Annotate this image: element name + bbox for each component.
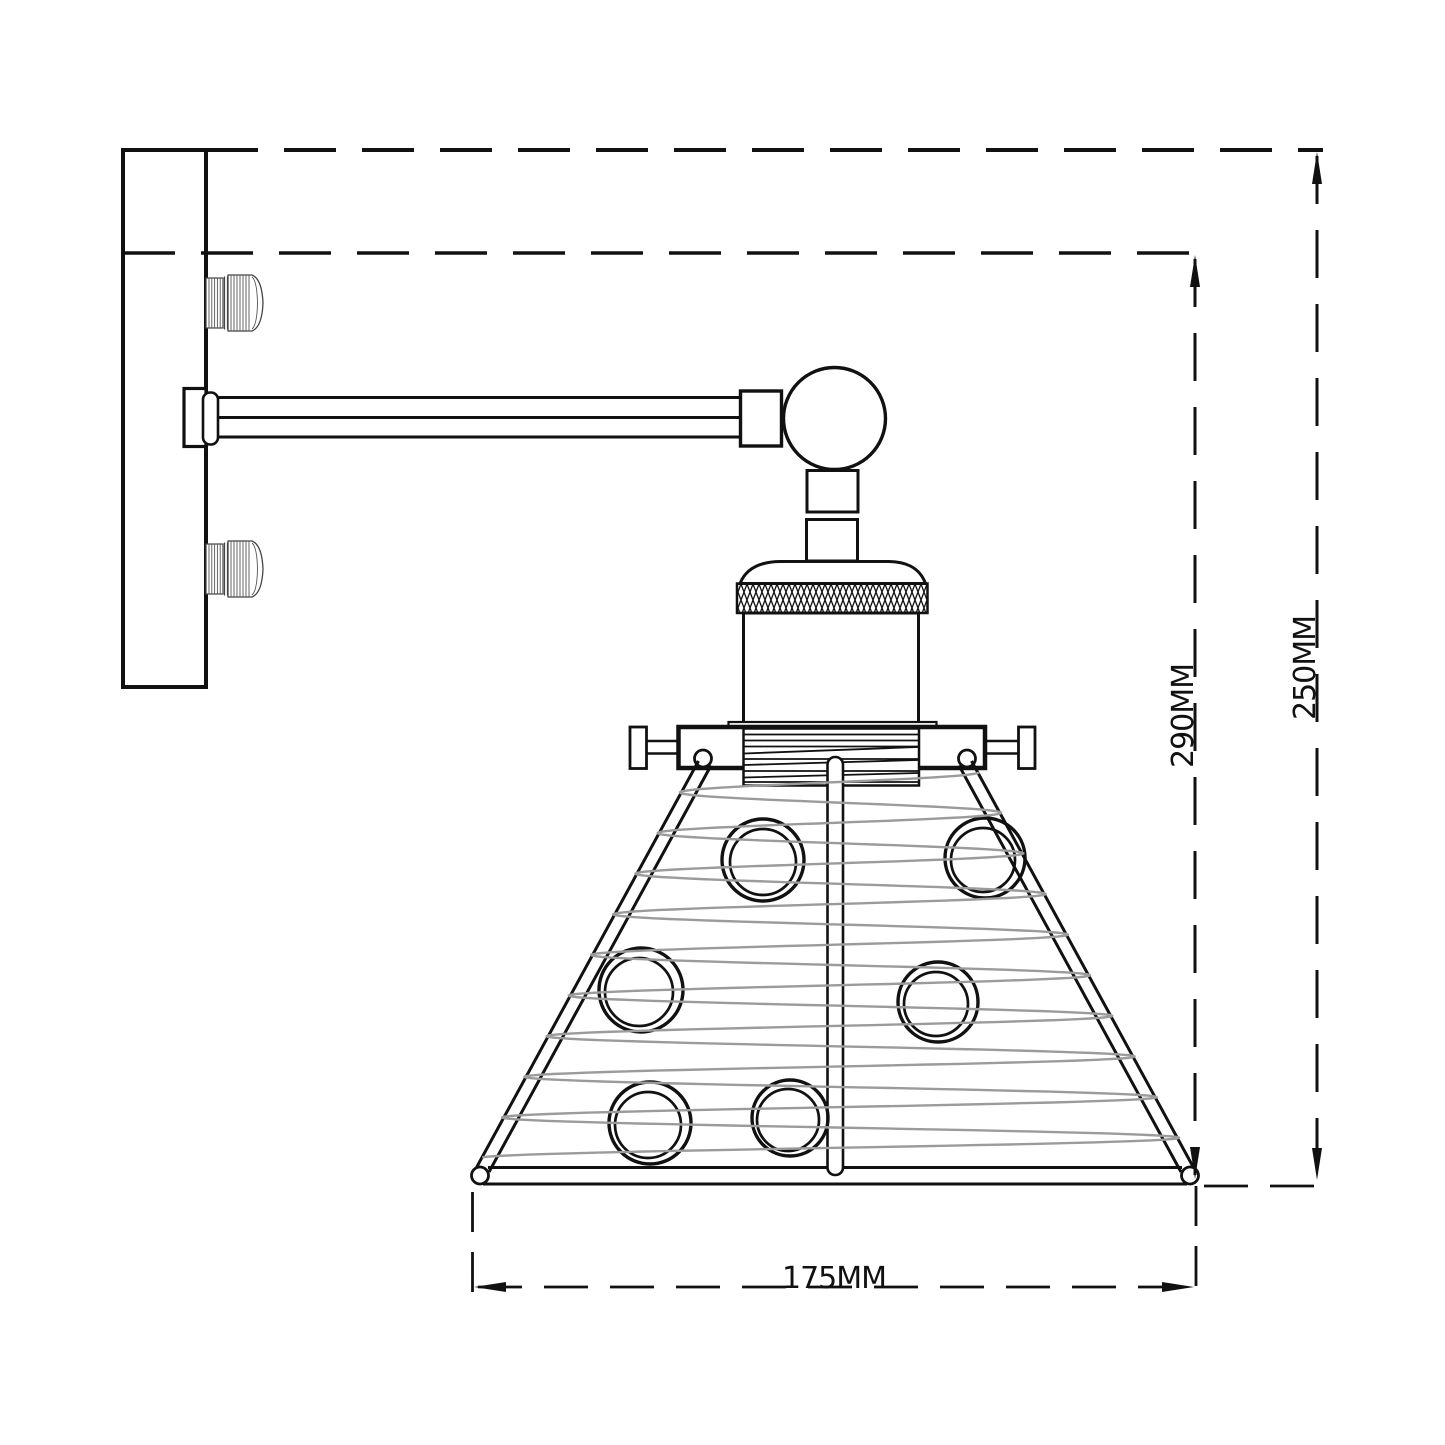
dimension-175mm-label: 175MM xyxy=(782,1261,886,1296)
dimension-175mm: 175MM xyxy=(473,1186,1331,1302)
dimension-290mm: 290MM xyxy=(1166,255,1201,1179)
technical-drawing: 250MM 290MM 175MM xyxy=(0,0,1445,1445)
shade-right-edge xyxy=(959,761,1194,1172)
shade-hole-inner xyxy=(757,1089,819,1151)
arm-bracket-cap xyxy=(203,393,218,445)
dimension-250mm-label: 250MM xyxy=(1288,616,1323,720)
thumbscrew-left-shaft xyxy=(647,741,680,754)
shade-hole-outer xyxy=(722,819,804,901)
socket-knurled-ring xyxy=(737,584,928,614)
shade-hole-outer xyxy=(752,1080,828,1156)
neck-lower xyxy=(807,520,858,562)
arrow-up-icon xyxy=(1312,152,1322,184)
cone-shade xyxy=(472,757,1199,1184)
mounting-screw-bottom xyxy=(206,541,263,597)
ball-joint xyxy=(784,368,886,470)
lamp-socket xyxy=(737,562,928,724)
arm-end-block xyxy=(741,391,782,446)
socket-dome-cap xyxy=(740,562,926,584)
shade-hole-outer xyxy=(898,962,978,1042)
thumbscrew-right-shaft xyxy=(984,741,1018,754)
arrow-left-icon xyxy=(474,1282,506,1292)
mounting-screw-top xyxy=(206,275,263,331)
arrow-down-icon xyxy=(1312,1148,1322,1180)
drawing-canvas: 250MM 290MM 175MM xyxy=(0,0,1445,1445)
thumbscrew-left-head xyxy=(630,727,647,769)
socket-body xyxy=(744,613,919,723)
arrow-up-icon xyxy=(1190,255,1200,287)
dimension-290mm-label: 290MM xyxy=(1166,664,1201,768)
rim-end-cap-left xyxy=(472,1167,489,1184)
thumbscrew-right-head xyxy=(1019,727,1036,769)
neck-upper xyxy=(807,471,858,513)
arrow-right-icon xyxy=(1162,1282,1194,1292)
dimension-250mm: 250MM xyxy=(1288,152,1323,1180)
swivel-arm xyxy=(184,389,782,447)
